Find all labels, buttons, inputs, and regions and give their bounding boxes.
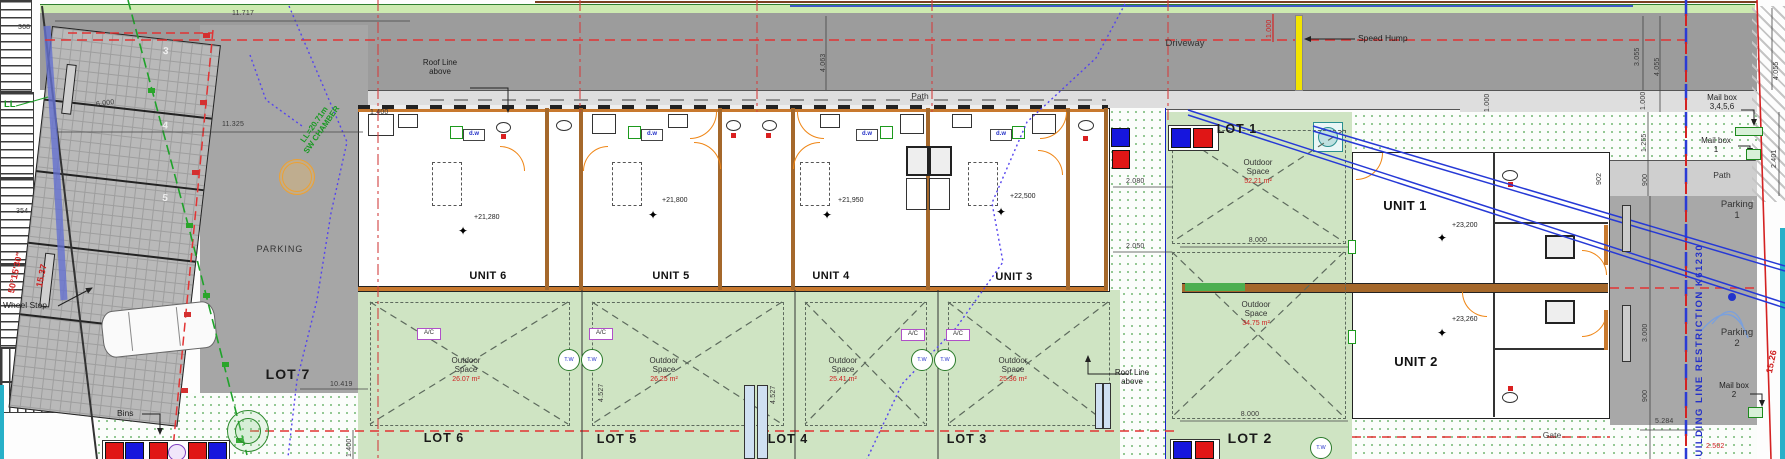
dim: 8.000 — [1249, 237, 1268, 244]
wheel-stop-p2 — [1622, 305, 1631, 362]
dim: 3.000 — [1642, 323, 1649, 342]
unit4-label: UNIT 4 — [812, 270, 849, 282]
unit2-label: UNIT 2 — [1394, 354, 1438, 369]
unit3-label: UNIT 3 — [995, 271, 1032, 283]
dim: 4.527 — [598, 383, 605, 402]
wheel-stop-label: Wheel Stop — [3, 300, 47, 310]
lot2-highlight — [1185, 283, 1245, 291]
unit1-label: UNIT 1 — [1383, 198, 1427, 213]
parking2-label: Parking 2 — [1721, 328, 1753, 350]
mailbox-1-label: Mail box 1 — [1701, 136, 1731, 154]
bin-waste — [105, 442, 124, 459]
dim: 11.325 — [222, 121, 244, 128]
tank-water-unit: T.W — [558, 349, 580, 371]
dim: 2.080 — [1126, 178, 1145, 185]
lot5-outdoor-space: Outdoor Space 26.25 m² — [641, 356, 687, 384]
unit6-label: UNIT 6 — [469, 270, 506, 282]
dim: 900 — [1642, 174, 1649, 186]
lot2-label: LOT 2 — [1228, 430, 1273, 446]
lot3-label: LOT 3 — [947, 432, 987, 446]
ll-label: LL — [4, 99, 16, 110]
lot4-outdoor-space: Outdoor Space 25.41 m² — [820, 356, 866, 384]
level-star: ✦ — [996, 206, 1006, 218]
path-label-top: Path — [911, 91, 929, 101]
dim: 2.401 — [1771, 149, 1778, 168]
linework-overlay — [0, 0, 1785, 459]
ac-unit: A/C — [589, 328, 613, 340]
rainwater-tank — [744, 385, 755, 459]
drainage-lines — [250, 4, 1125, 459]
bin-waste — [1193, 128, 1213, 148]
dim: 4.055 — [1654, 57, 1661, 76]
dimension-lines — [55, 8, 1779, 459]
dim: 4.527 — [770, 385, 777, 404]
speed-hump — [1295, 15, 1303, 91]
gate-label: Gate — [1543, 430, 1561, 440]
dim: 4.055 — [1773, 61, 1780, 80]
dim: 1.000 — [1484, 93, 1491, 112]
lot3-outdoor-space: Outdoor Space 25.36 m² — [990, 356, 1036, 384]
level-star: ✦ — [458, 225, 468, 237]
level-star: ✦ — [822, 209, 832, 221]
level-star: ✦ — [1437, 232, 1447, 244]
mailbox-unit — [1746, 149, 1761, 160]
bin-recycling — [1171, 128, 1191, 148]
speed-hump-label: Speed Hump — [1358, 33, 1408, 43]
unit3-level: +22,500 — [1010, 193, 1036, 200]
mailbox-3456-label: Mail box 3,4,5,6 — [1707, 93, 1737, 111]
level-star: ✦ — [648, 209, 658, 221]
mailbox-unit — [1748, 407, 1763, 418]
bin-waste — [1195, 441, 1214, 459]
ac-unit: A/C — [417, 328, 441, 340]
lot6-label: LOT 6 — [424, 431, 464, 445]
dim: 902 — [1596, 173, 1603, 185]
dim: 2.502 — [1706, 443, 1725, 450]
lot6-outdoor-space: Outdoor Space 26.07 m² — [443, 356, 489, 384]
dim: 5.284 — [1655, 418, 1674, 425]
dim: 4.063 — [820, 53, 827, 72]
dim: 368 — [18, 24, 30, 31]
lot1-outdoor-space: Outdoor Space 52.21 m² — [1235, 158, 1281, 186]
dim: 900 — [1642, 390, 1649, 402]
dim: 1.400 — [370, 109, 389, 116]
ac-unit: A/C — [901, 329, 925, 341]
roof-line-label-1: Roof Line above — [423, 58, 457, 76]
unit5-label: UNIT 5 — [652, 270, 689, 282]
wheel-stop-p1 — [1622, 205, 1631, 252]
unit6-level: +21,280 — [474, 214, 500, 221]
rainwater-tank — [1103, 383, 1111, 429]
sw-chamber — [279, 159, 315, 195]
rainwater-tank — [757, 385, 768, 459]
bin-waste — [188, 442, 207, 459]
top-service-lines — [535, 2, 1757, 6]
building-line-restriction-label: BUILDING LINE RESTRICTION K61230 — [1694, 145, 1705, 459]
roof-line-label-2: Roof Line above — [1115, 368, 1149, 386]
lot5-label: LOT 5 — [597, 432, 637, 446]
dim: 354 — [16, 208, 28, 215]
parking-area-label: PARKING — [257, 244, 304, 254]
dim: 2.050 — [1126, 243, 1145, 250]
dim: 1.400 — [346, 438, 353, 457]
dim: 1.000 — [1266, 19, 1273, 38]
dim: 10.419 — [330, 381, 353, 388]
lot1-label: LOT 1 — [1217, 122, 1257, 136]
bin-waste — [149, 442, 168, 459]
unit5-level: +21,800 — [662, 197, 688, 204]
bin-recycling — [1173, 441, 1192, 459]
tank-water-unit: T.W — [581, 349, 603, 371]
unit1-level: +23,200 — [1452, 222, 1478, 229]
parking1-label: Parking 1 — [1721, 200, 1753, 222]
lot7-label: LOT 7 — [266, 366, 311, 382]
driveway-label: Driveway — [1165, 38, 1204, 49]
tank-water-unit: T.W — [1310, 437, 1332, 459]
boundary-lines — [42, 0, 1771, 459]
bin-recycling — [208, 442, 227, 459]
dim: 8.000 — [1241, 411, 1260, 418]
manhole — [168, 444, 186, 459]
path-label-right: Path — [1713, 170, 1731, 180]
dim: 1.000 — [1640, 91, 1647, 110]
bin-recycling — [125, 442, 144, 459]
tank-water-unit: T.W — [911, 349, 933, 371]
site-plan: 3 4 5 d.w d.w d.w — [0, 0, 1785, 459]
mailbox-2-label: Mail box 2 — [1719, 381, 1749, 399]
dim: 1.255 — [1641, 133, 1648, 152]
tank-water-unit: T.W — [934, 349, 956, 371]
level-star: ✦ — [1437, 327, 1447, 339]
lot4-label: LOT 4 — [768, 432, 808, 446]
lot2-outdoor-space: Outdoor Space 34.75 m² — [1233, 300, 1279, 328]
rainwater-tank — [1095, 383, 1103, 429]
unit2-level: +23,260 — [1452, 316, 1478, 323]
bins-label: Bins — [117, 408, 134, 418]
mailbox-bank — [1735, 127, 1763, 136]
ac-unit: A/C — [946, 329, 970, 341]
dim: 11.717 — [232, 10, 254, 17]
unit4-level: +21,950 — [838, 197, 864, 204]
sewer-line — [128, 0, 247, 455]
dim: 3.055 — [1634, 47, 1641, 66]
